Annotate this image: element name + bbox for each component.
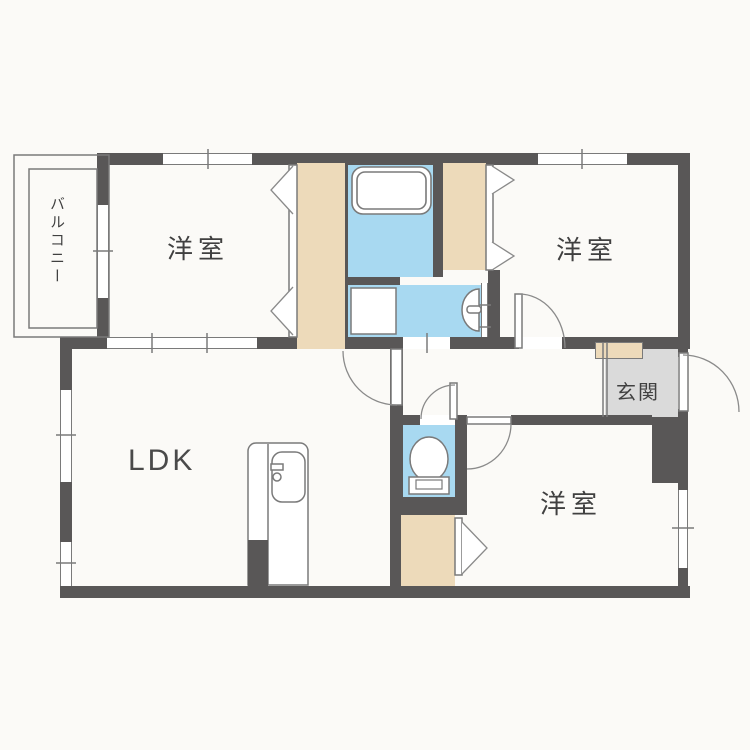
door-leaf-entrance: [679, 353, 688, 411]
washbasin-faucet-icon: [467, 306, 481, 313]
bathtub-icon: [352, 167, 431, 214]
door-arc-ldk: [343, 351, 397, 405]
kitchen-wall-stub: [248, 540, 268, 586]
room-nw-label: 洋室: [167, 229, 229, 266]
floor-plan: バルコニー 洋室 洋室 洋室 LDK 玄関: [0, 0, 750, 750]
door-arc-room-se: [467, 424, 511, 469]
ldk-label: LDK: [128, 444, 195, 478]
toilet-bowl-icon: [410, 437, 448, 481]
door-leaf-toilet: [450, 383, 457, 419]
door-arc-room-ne: [519, 294, 565, 348]
folding-door-icon: [462, 522, 487, 574]
balcony-label: バルコニー: [46, 196, 67, 286]
kitchen-faucet-icon: [271, 464, 283, 470]
closet-door-track-se: [455, 518, 462, 575]
door-leaf-room-se: [467, 417, 511, 424]
room-ne-label: 洋室: [556, 230, 618, 267]
plan-symbols: [0, 0, 750, 750]
folding-door-icon: [271, 287, 293, 335]
folding-door-icon: [271, 166, 293, 214]
room-se-label: 洋室: [540, 484, 602, 521]
door-leaf-room-ne: [515, 294, 522, 348]
closet-door-track-ne: [486, 165, 493, 270]
folding-door-icon: [492, 166, 514, 194]
door-arc-entrance: [683, 355, 739, 412]
folding-door-icon: [492, 242, 514, 270]
washing-machine-pan-icon: [351, 288, 396, 334]
door-leaf-ldk: [391, 349, 402, 405]
entrance-label: 玄関: [616, 376, 660, 405]
